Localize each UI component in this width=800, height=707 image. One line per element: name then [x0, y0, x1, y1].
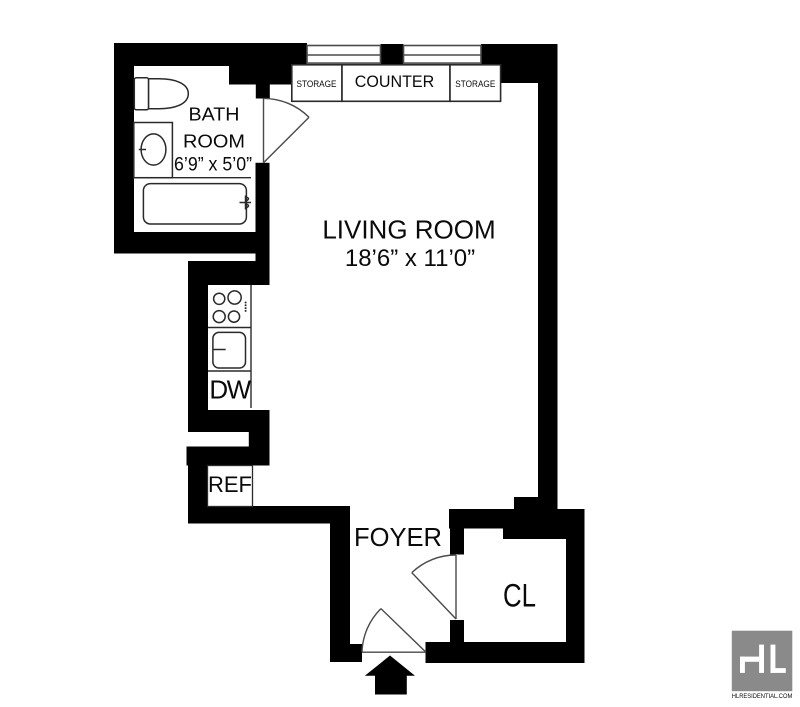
svg-text:LIVING ROOM: LIVING ROOM: [322, 215, 495, 245]
svg-text:ROOM: ROOM: [183, 131, 245, 151]
svg-text:CL: CL: [503, 578, 536, 614]
svg-text:COUNTER: COUNTER: [355, 73, 435, 91]
svg-text:STORAGE: STORAGE: [455, 79, 495, 89]
svg-text:STORAGE: STORAGE: [297, 79, 337, 89]
svg-text:6’9” x 5’0”: 6’9” x 5’0”: [174, 154, 252, 175]
svg-text:BATH: BATH: [189, 105, 240, 125]
svg-text:REF: REF: [208, 472, 252, 497]
svg-text:18’6” x 11’0”: 18’6” x 11’0”: [345, 245, 475, 272]
svg-text:FOYER: FOYER: [354, 522, 442, 552]
svg-text:DW: DW: [209, 375, 251, 405]
svg-text:HLRESIDENTIAL.COM: HLRESIDENTIAL.COM: [732, 693, 793, 700]
